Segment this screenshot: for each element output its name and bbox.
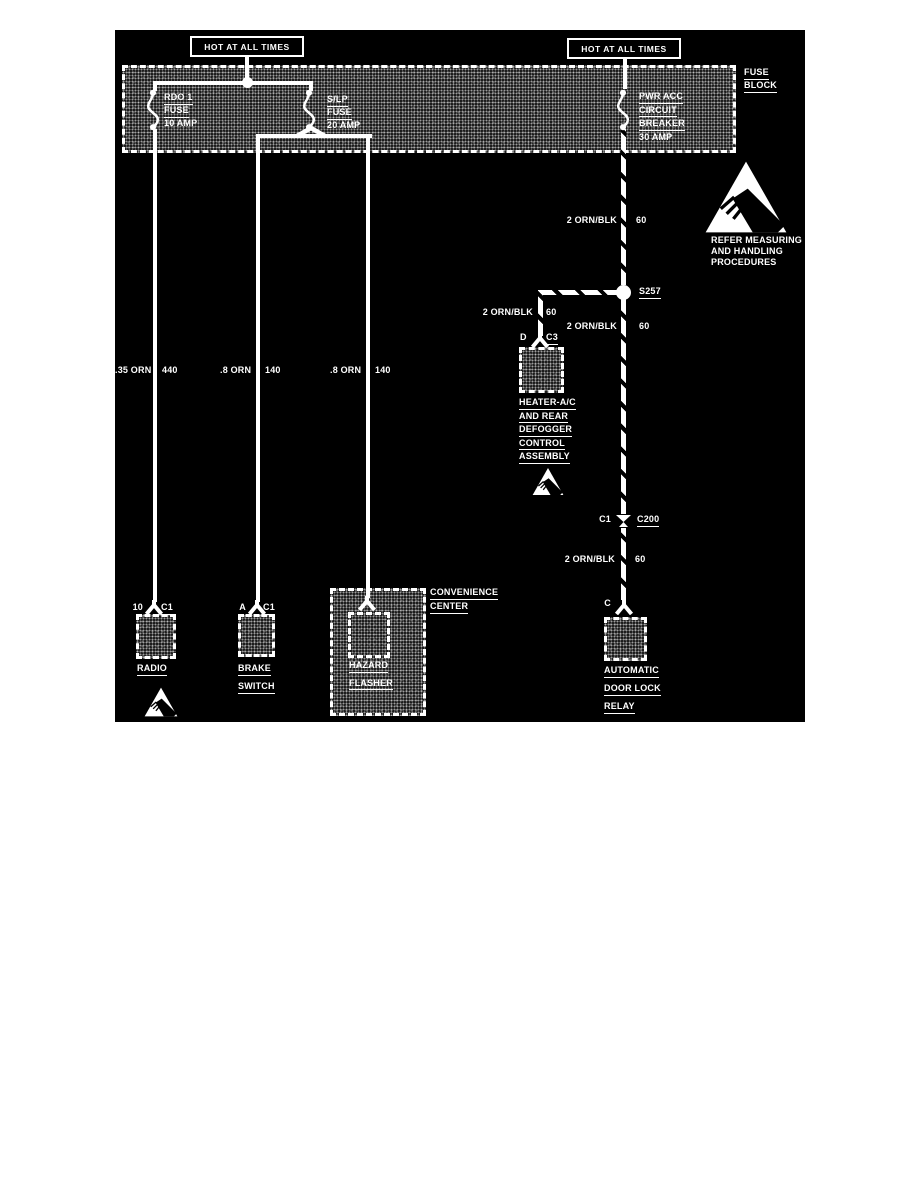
slp-fuse-word: FUSE: [327, 106, 352, 120]
splice-s257-dot: [616, 285, 631, 300]
page: { "diagram": { "colors": { "background":…: [0, 0, 918, 1188]
splice-s257-text: S257: [639, 285, 661, 299]
connector-c200-pin: C1: [581, 513, 611, 525]
hot-at-all-times-left: HOT AT ALL TIMES: [190, 36, 304, 57]
convenience-label-2: CENTER: [430, 600, 468, 614]
door-lock-relay-box: [604, 617, 647, 661]
wire-feed-mid-gauge: 2 ORN/BLK: [527, 320, 617, 332]
splice-s257-label: S257: [639, 285, 661, 299]
radio-pin: 10: [121, 601, 143, 613]
brake-switch-label: BRAKE SWITCH: [238, 662, 275, 698]
breaker-word-1: CIRCUIT: [639, 104, 677, 118]
fuse-block-label-2: BLOCK: [744, 79, 777, 93]
brake-label-2: SWITCH: [238, 680, 275, 694]
relay-label-2: DOOR LOCK: [604, 682, 661, 696]
slp-fuse-name: S/LP: [327, 93, 348, 107]
wire-feed-lower-gauge: 2 ORN/BLK: [525, 553, 615, 565]
convenience-label-1: CONVENIENCE: [430, 586, 498, 600]
hot-right-label: HOT AT ALL TIMES: [581, 44, 666, 54]
heater-pin: D: [520, 331, 527, 343]
brake-label-1: BRAKE: [238, 662, 271, 676]
fuse-block-label-1: FUSE: [744, 66, 769, 80]
junction-dot: [242, 77, 253, 88]
pwr-acc-breaker-label: PWR ACC CIRCUIT BREAKER 30 AMP: [639, 90, 685, 143]
heater-label-5: ASSEMBLY: [519, 450, 570, 464]
radio-label-text: RADIO: [137, 662, 167, 676]
wire-feed-mid: [621, 299, 626, 514]
relay-pin: C: [591, 597, 611, 609]
wire-heater-branch-gauge: 2 ORN/BLK: [447, 306, 533, 318]
heater-label-1: HEATER-A/C: [519, 396, 576, 410]
hot-at-all-times-right: HOT AT ALL TIMES: [567, 38, 681, 59]
heater-label-2: AND REAR: [519, 410, 568, 424]
wire-heater-branch-circuit: 60: [546, 306, 556, 318]
radio-box: [136, 614, 176, 659]
esd-warning-icon: [702, 160, 790, 234]
wire-radio-circuit: 440: [162, 364, 178, 376]
heater-control-box: [519, 347, 564, 393]
hazard-flasher-box: [348, 612, 390, 658]
esd-note-1: REFER MEASURING: [711, 235, 802, 246]
connector-c200-label: C200: [637, 513, 659, 527]
wire-heater-branch-horizontal: [540, 290, 620, 295]
convenience-center-label: CONVENIENCE CENTER: [430, 586, 498, 614]
rdo-fuse-symbol: [146, 89, 160, 131]
brake-switch-box: [238, 614, 275, 657]
relay-label-1: AUTOMATIC: [604, 664, 659, 678]
heater-connector-text: C3: [546, 331, 558, 345]
rdo-fuse-rating: 10 AMP: [164, 118, 197, 128]
brake-connector-text: C1: [263, 601, 275, 615]
heater-label-3: DEFOGGER: [519, 423, 572, 437]
hazard-flasher-label: HAZARD FLASHER: [349, 659, 393, 694]
radio-connector: C1: [161, 601, 173, 615]
wire-hazard-gauge: .8 ORN: [330, 364, 361, 376]
hazard-label-1: HAZARD: [349, 659, 388, 673]
heater-label-4: CONTROL: [519, 437, 565, 451]
wire-radio-gauge: .35 ORN: [115, 364, 148, 376]
hazard-label-2: FLASHER: [349, 677, 393, 691]
radio-label: RADIO: [137, 662, 167, 676]
wire-brake-feed: [256, 137, 260, 602]
esd-warning-icon-radio: [143, 687, 179, 717]
connector-c200-symbol: [615, 514, 632, 528]
slp-fuse-symbol: [302, 89, 316, 131]
heater-label: HEATER-A/C AND REAR DEFOGGER CONTROL ASS…: [519, 396, 576, 464]
door-lock-relay-label: AUTOMATIC DOOR LOCK RELAY: [604, 664, 661, 718]
slp-fuse-rating: 20 AMP: [327, 120, 360, 130]
wire-feed-upper-circuit: 60: [636, 214, 646, 226]
pwr-acc-breaker-symbol: [616, 89, 630, 131]
heater-connector: C3: [546, 331, 558, 345]
hazard-terminal-fork: [357, 596, 377, 611]
wire-hot-right-drop: [623, 57, 627, 89]
rdo-fuse-name: RDO 1: [164, 91, 193, 105]
wire-feed-upper-gauge: 2 ORN/BLK: [527, 214, 617, 226]
brake-connector: C1: [263, 601, 275, 615]
wire-brake-gauge: .8 ORN: [220, 364, 251, 376]
rdo-fuse-word: FUSE: [164, 104, 189, 118]
wire-feed-lower-circuit: 60: [635, 553, 645, 565]
wire-brake-circuit: 140: [265, 364, 281, 376]
wire-bus-horizontal: [153, 81, 313, 85]
breaker-name: PWR ACC: [639, 90, 683, 104]
wire-radio-feed: [153, 129, 157, 602]
esd-note-2: AND HANDLING: [711, 246, 802, 257]
hot-left-label: HOT AT ALL TIMES: [204, 42, 289, 52]
wire-feed-mid-circuit: 60: [639, 320, 649, 332]
brake-pin: A: [220, 601, 246, 613]
wire-hazard-circuit: 140: [375, 364, 391, 376]
esd-note: REFER MEASURING AND HANDLING PROCEDURES: [711, 235, 802, 268]
slp-fuse-label: S/LP FUSE 20 AMP: [327, 93, 360, 132]
relay-terminal-fork: [614, 600, 634, 615]
esd-note-3: PROCEDURES: [711, 257, 802, 268]
connector-c200-text: C200: [637, 513, 659, 527]
breaker-word-2: BREAKER: [639, 117, 685, 131]
fuse-block-label: FUSE BLOCK: [744, 66, 777, 92]
wire-feed-lower: [621, 528, 626, 600]
wiring-diagram: HOT AT ALL TIMES HOT AT ALL TIMES FUSE B…: [115, 30, 805, 722]
rdo-fuse-label: RDO 1 FUSE 10 AMP: [164, 91, 197, 130]
breaker-rating: 30 AMP: [639, 132, 672, 142]
wire-hazard-feed: [366, 137, 370, 598]
esd-warning-icon-heater: [532, 467, 564, 496]
relay-label-3: RELAY: [604, 700, 635, 714]
wire-feed-upper: [621, 129, 626, 285]
radio-connector-text: C1: [161, 601, 173, 615]
